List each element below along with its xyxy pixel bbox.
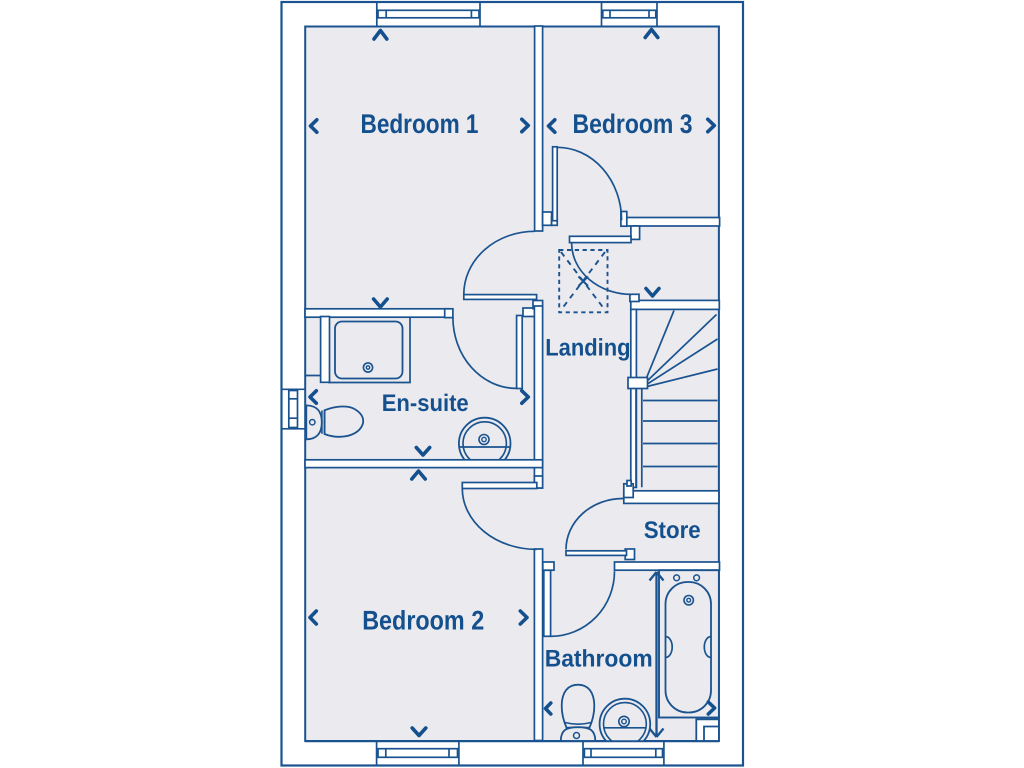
svg-text:Bedroom 1: Bedroom 1 xyxy=(361,109,479,139)
svg-text:Bedroom 3: Bedroom 3 xyxy=(573,109,693,139)
svg-text:En-suite: En-suite xyxy=(382,390,469,417)
svg-text:Bedroom 2: Bedroom 2 xyxy=(362,606,484,636)
svg-text:Bathroom: Bathroom xyxy=(545,646,653,673)
svg-text:Store: Store xyxy=(644,517,701,544)
svg-text:Landing: Landing xyxy=(545,335,630,362)
